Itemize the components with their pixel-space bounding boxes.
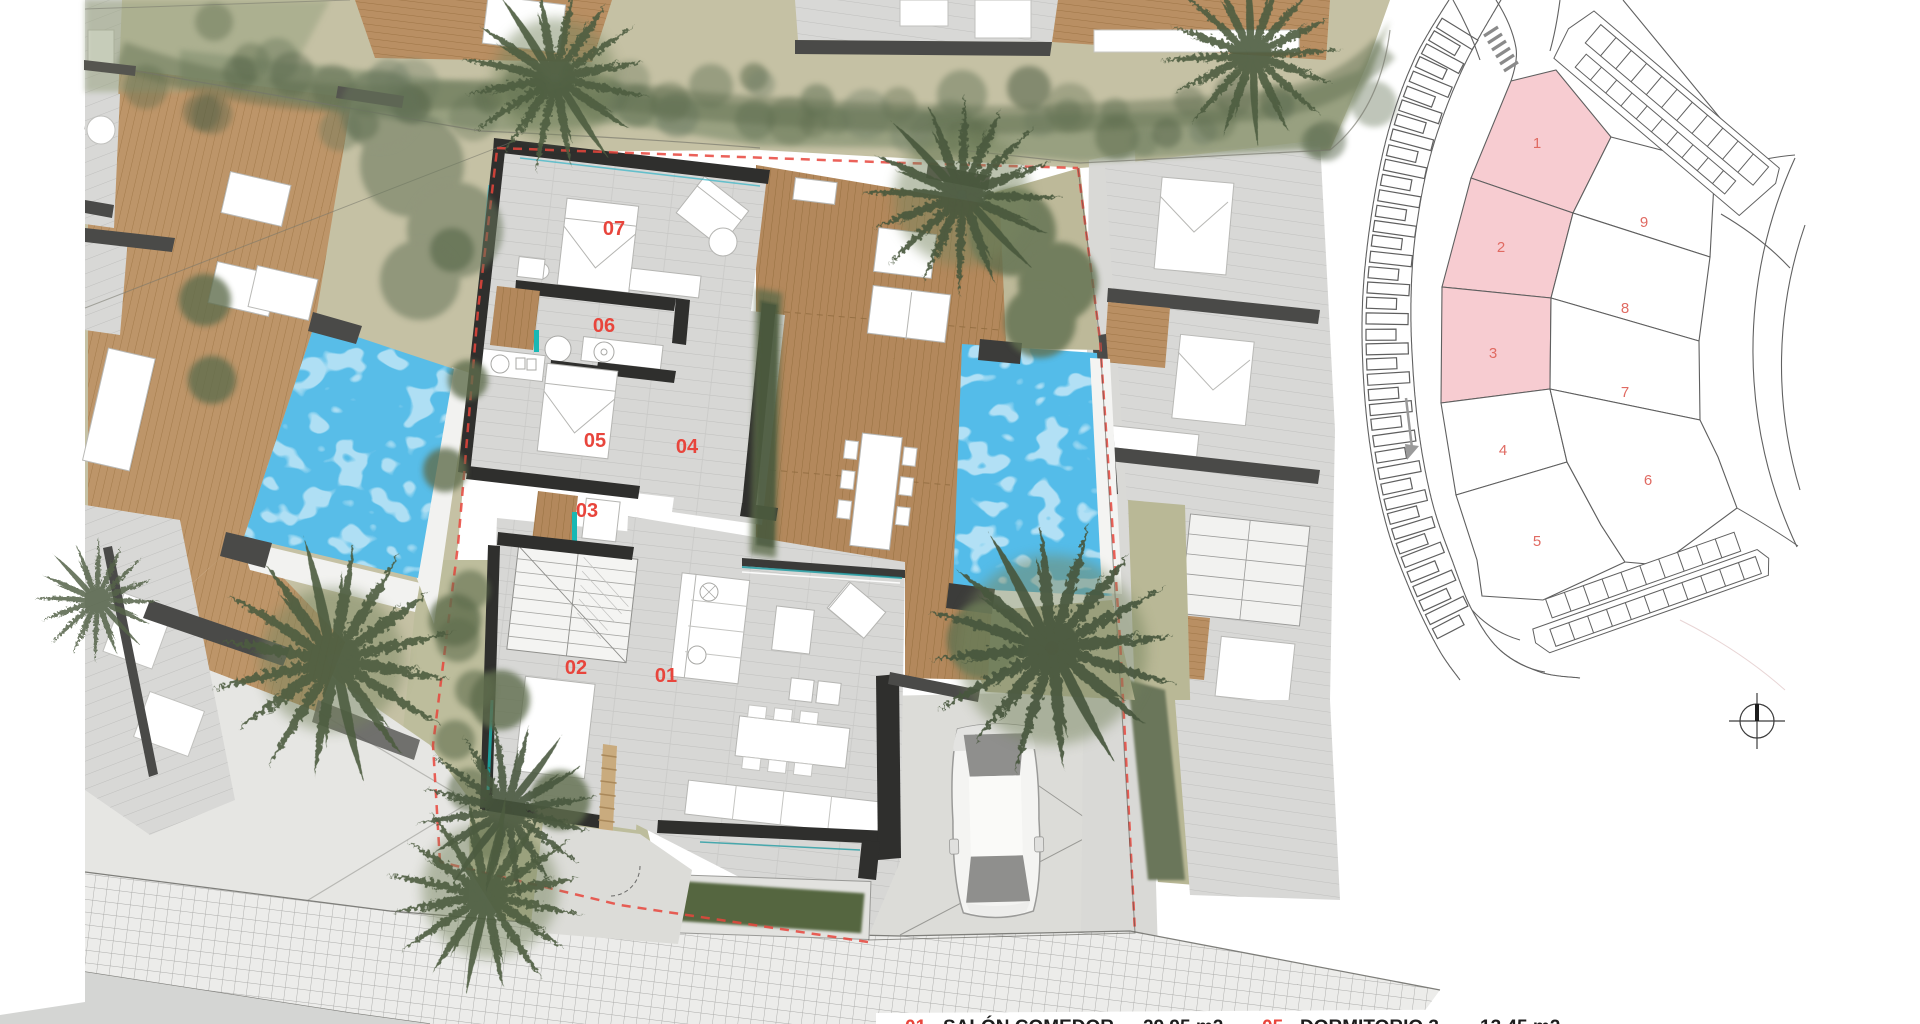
svg-text:01: 01 <box>905 1017 927 1024</box>
svg-text:DORMITORIO 3: DORMITORIO 3 <box>1300 1017 1439 1024</box>
svg-text:7: 7 <box>1621 384 1629 401</box>
svg-text:SALÓN COMEDOR: SALÓN COMEDOR <box>943 1016 1114 1024</box>
svg-text:05: 05 <box>1262 1017 1284 1024</box>
svg-text:29.95 m2: 29.95 m2 <box>1143 1017 1223 1024</box>
svg-text:04: 04 <box>676 436 699 458</box>
svg-text:06: 06 <box>593 315 615 337</box>
svg-text:13.45 m2: 13.45 m2 <box>1480 1017 1560 1024</box>
svg-text:05: 05 <box>584 430 606 452</box>
svg-text:03: 03 <box>576 500 598 522</box>
svg-text:07: 07 <box>603 218 625 240</box>
svg-text:02: 02 <box>565 657 587 679</box>
svg-text:1: 1 <box>1533 135 1541 152</box>
svg-text:5: 5 <box>1533 533 1541 550</box>
svg-text:8: 8 <box>1621 300 1629 317</box>
svg-text:9: 9 <box>1640 214 1648 231</box>
svg-text:6: 6 <box>1644 472 1652 489</box>
svg-text:2: 2 <box>1497 239 1505 256</box>
svg-text:4: 4 <box>1499 442 1507 459</box>
svg-text:3: 3 <box>1489 345 1497 362</box>
svg-text:01: 01 <box>655 665 677 687</box>
